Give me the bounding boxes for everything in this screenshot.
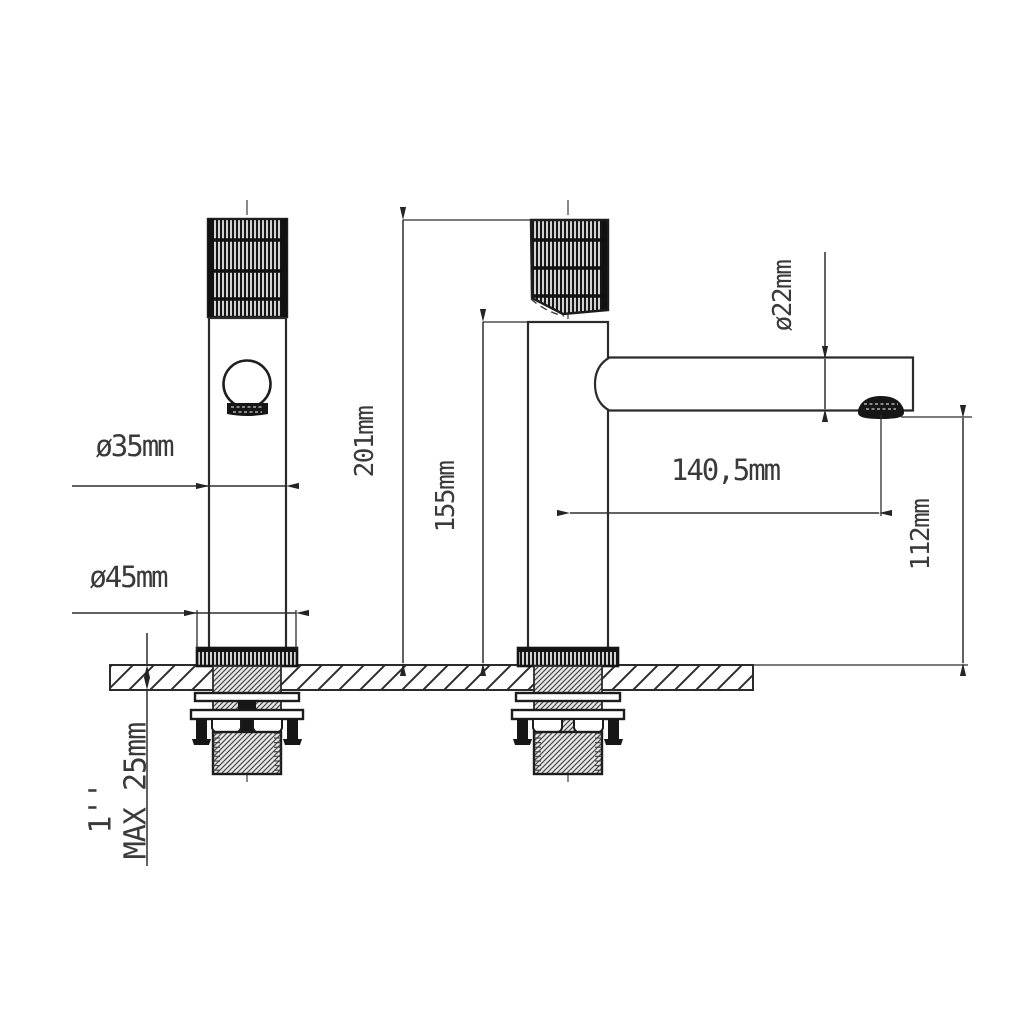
label-handle-diameter: ø35mm <box>95 429 174 463</box>
faucet-technical-drawing: ø35mm ø45mm MAX 25mm 1'' 201mm 155mm ø22… <box>0 0 1024 1024</box>
dim-total-height: 201mm <box>350 220 531 663</box>
label-spout-reach: 140,5mm <box>671 453 781 487</box>
front-handle <box>208 219 287 317</box>
dim-spout-height: 112mm <box>901 417 972 663</box>
label-base-diameter: ø45mm <box>89 560 168 594</box>
label-thread-size: 1'' <box>84 782 119 833</box>
side-base-ring <box>518 648 618 666</box>
label-total-height: 201mm <box>350 406 380 478</box>
label-height-to-spout-top: 155mm <box>431 461 461 533</box>
countertop-slab <box>110 665 753 690</box>
faucet-side-view <box>512 200 913 782</box>
drawing-svg: ø35mm ø45mm MAX 25mm 1'' 201mm 155mm ø22… <box>0 0 1024 1024</box>
faucet-front-view <box>191 200 303 782</box>
label-spout-height: 112mm <box>906 499 936 571</box>
dim-spout-top-height: 155mm <box>431 322 529 663</box>
side-handle <box>528 218 612 318</box>
dim-spout-reach: 140,5mm <box>570 415 881 516</box>
side-body <box>528 322 608 649</box>
label-spout-diameter: ø22mm <box>768 260 798 332</box>
front-base-ring <box>197 648 297 666</box>
front-logo-badge <box>224 361 271 417</box>
label-counter-max-thickness: MAX 25mm <box>119 723 154 860</box>
